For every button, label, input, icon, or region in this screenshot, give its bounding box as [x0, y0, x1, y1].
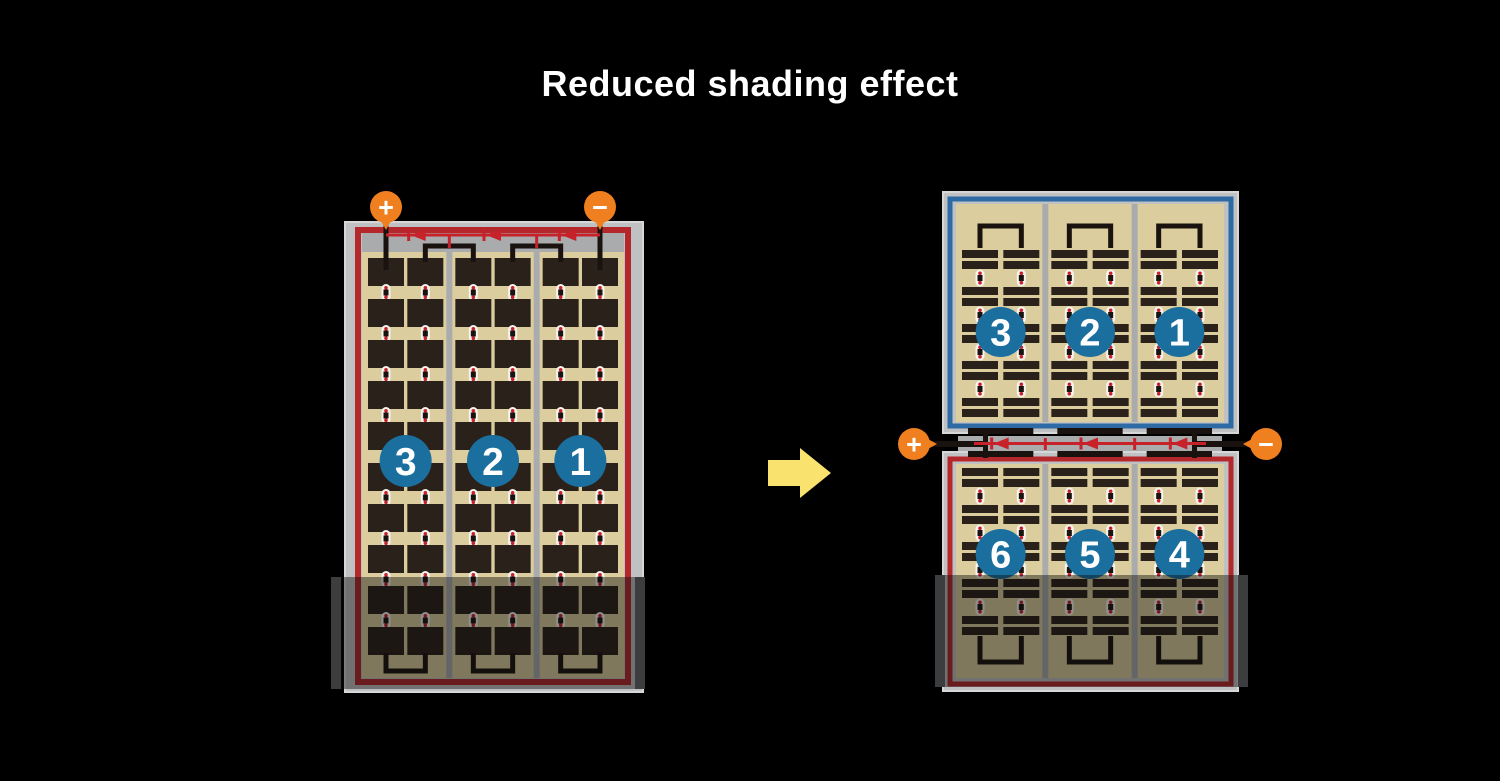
- solder-connector-icon: [508, 530, 517, 547]
- bottom-string-circle-5: 5: [1065, 529, 1115, 579]
- string-circle-2-label: 2: [482, 441, 504, 484]
- solder-connector-icon: [1106, 381, 1115, 398]
- split-panel-top-half: 321: [943, 192, 1238, 433]
- solder-connector-icon: [382, 530, 391, 547]
- split-positive-terminal: +: [898, 428, 937, 460]
- solder-connector-icon: [469, 489, 478, 506]
- solder-connector-icon: [556, 325, 565, 342]
- solder-connector-icon: [382, 407, 391, 424]
- solder-connector-icon: [976, 381, 985, 398]
- solder-connector-icon: [556, 407, 565, 424]
- solder-connector-icon: [556, 284, 565, 301]
- solder-connector-icon: [1106, 270, 1115, 287]
- solder-connector-icon: [596, 284, 605, 301]
- shading-diagram-graphics: +−321321654+−: [0, 0, 1500, 781]
- solder-connector-icon: [1017, 488, 1026, 505]
- solder-connector-icon: [1154, 381, 1163, 398]
- solder-connector-icon: [421, 407, 430, 424]
- solder-connector-icon: [1065, 488, 1074, 505]
- transition-arrow-icon: [768, 448, 831, 498]
- solder-connector-icon: [382, 489, 391, 506]
- solder-connector-icon: [556, 366, 565, 383]
- solder-connector-icon: [508, 284, 517, 301]
- solder-connector-icon: [508, 407, 517, 424]
- top-string-circle-2: 2: [1065, 307, 1115, 357]
- top-string-circle-1-label: 1: [1169, 312, 1190, 354]
- solder-connector-icon: [508, 366, 517, 383]
- string-circle-1: 1: [554, 435, 606, 487]
- solder-connector-icon: [976, 270, 985, 287]
- top-string-circle-2-label: 2: [1079, 312, 1100, 354]
- solder-connector-icon: [382, 325, 391, 342]
- top-string-circle-3-label: 3: [990, 312, 1011, 354]
- solder-connector-icon: [469, 284, 478, 301]
- junction-strip: [926, 428, 1254, 458]
- solder-connector-icon: [1196, 381, 1205, 398]
- solder-connector-icon: [1065, 381, 1074, 398]
- string-circle-1-label: 1: [569, 441, 591, 484]
- solder-connector-icon: [421, 366, 430, 383]
- solder-connector-icon: [469, 530, 478, 547]
- bottom-string-circle-5-label: 5: [1079, 534, 1100, 576]
- solder-connector-icon: [976, 488, 985, 505]
- top-string-circle-1: 1: [1154, 307, 1204, 357]
- solder-connector-icon: [469, 325, 478, 342]
- solder-connector-icon: [1017, 381, 1026, 398]
- solder-connector-icon: [382, 366, 391, 383]
- bottom-string-circle-6-label: 6: [990, 534, 1011, 576]
- string-circle-3-label: 3: [395, 441, 417, 484]
- solder-connector-icon: [421, 530, 430, 547]
- solder-connector-icon: [596, 489, 605, 506]
- top-string-circle-3: 3: [976, 307, 1026, 357]
- solder-connector-icon: [1106, 488, 1115, 505]
- negative-terminal-symbol: −: [592, 193, 608, 223]
- solder-connector-icon: [421, 284, 430, 301]
- string-circle-3: 3: [380, 435, 432, 487]
- split-negative-terminal: −: [1243, 428, 1282, 460]
- bottom-string-circle-6: 6: [976, 529, 1026, 579]
- solder-connector-icon: [1196, 488, 1205, 505]
- positive-terminal-symbol: +: [378, 193, 394, 223]
- solder-connector-icon: [508, 489, 517, 506]
- bottom-string-circle-4: 4: [1154, 529, 1204, 579]
- solder-connector-icon: [382, 284, 391, 301]
- string-circle-2: 2: [467, 435, 519, 487]
- split-panel: 321654+−: [898, 192, 1282, 691]
- solder-connector-icon: [1065, 270, 1074, 287]
- solder-connector-icon: [1154, 270, 1163, 287]
- solder-connector-icon: [1154, 488, 1163, 505]
- solder-connector-icon: [469, 407, 478, 424]
- solder-connector-icon: [596, 407, 605, 424]
- solder-connector-icon: [421, 489, 430, 506]
- solder-connector-icon: [1196, 270, 1205, 287]
- solder-connector-icon: [1017, 270, 1026, 287]
- split-negative-terminal-symbol: −: [1258, 430, 1274, 460]
- solder-connector-icon: [596, 530, 605, 547]
- shading-overlay: [331, 577, 645, 689]
- solder-connector-icon: [596, 366, 605, 383]
- solder-connector-icon: [556, 530, 565, 547]
- bottom-string-circle-4-label: 4: [1169, 534, 1190, 576]
- split-positive-terminal-symbol: +: [906, 430, 922, 460]
- single-panel: +−321: [331, 191, 645, 692]
- solder-connector-icon: [596, 325, 605, 342]
- solder-connector-icon: [421, 325, 430, 342]
- shading-overlay: [935, 575, 1248, 687]
- diagram: Reduced shading effect +−321321654+−: [0, 0, 1500, 781]
- solder-connector-icon: [556, 489, 565, 506]
- solder-connector-icon: [469, 366, 478, 383]
- solder-connector-icon: [508, 325, 517, 342]
